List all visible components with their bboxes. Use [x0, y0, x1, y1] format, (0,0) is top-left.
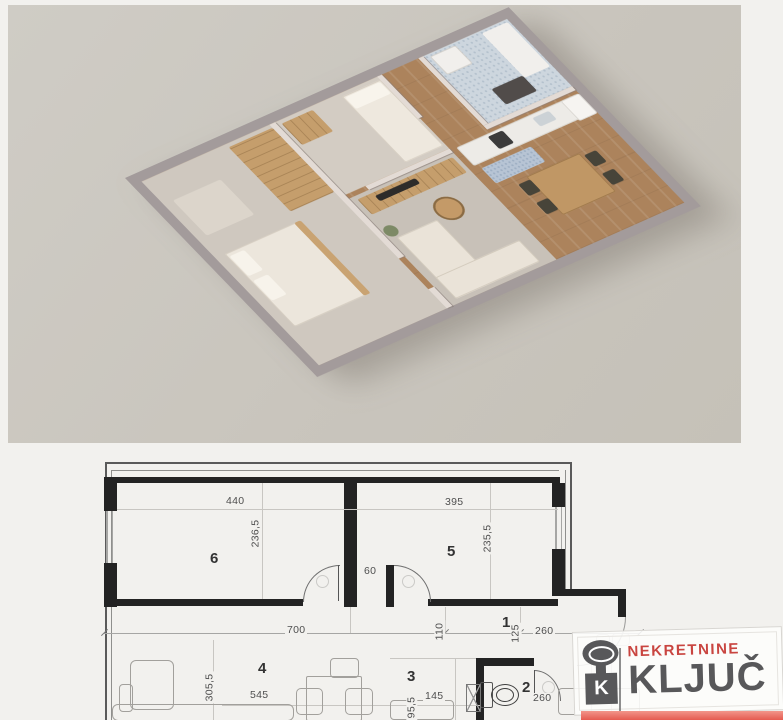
wall	[344, 483, 357, 607]
outer-wall-line	[111, 470, 559, 471]
sofa-outline	[130, 660, 174, 710]
wall	[104, 563, 117, 607]
key-body: K	[585, 673, 618, 705]
shaft-symbol	[466, 684, 481, 712]
wall	[386, 565, 394, 607]
apartment-floor	[142, 19, 685, 365]
dimension-line	[104, 633, 640, 634]
dim-room5-width: 395	[443, 497, 465, 508]
room-label-4: 4	[258, 660, 266, 677]
listing-image: 6 5 4 3 1 2 440 236,5 395 235,5 60 700 1…	[0, 0, 783, 720]
kitchen-outline	[390, 700, 454, 720]
agency-logo: K NEKRETNINE KLJUČ	[572, 626, 783, 716]
construction-line	[117, 509, 558, 510]
dim-hall-depth: 110	[434, 621, 445, 643]
room-label-3: 3	[407, 668, 415, 685]
apartment-3d-render	[125, 7, 701, 377]
construction-line	[390, 658, 476, 659]
wall	[104, 477, 117, 511]
dim-hall-a: 125	[511, 622, 522, 644]
dim-room5-height: 235,5	[482, 523, 493, 555]
construction-line	[455, 658, 456, 720]
chair-outline	[296, 688, 323, 715]
wall	[428, 599, 558, 606]
sofa-outline	[112, 704, 294, 720]
wall	[552, 483, 565, 507]
toilet-bowl-inner	[496, 688, 514, 702]
wall	[558, 589, 626, 596]
room-label-5: 5	[447, 543, 455, 560]
construction-line	[350, 607, 351, 633]
room-label-6: 6	[210, 550, 218, 567]
key-icon: K	[581, 640, 621, 707]
outer-wall-line	[105, 462, 572, 464]
dim-kitchen-width: 145	[423, 691, 445, 702]
key-head	[582, 640, 619, 667]
dim-wc-width: 260	[531, 693, 553, 704]
cabinet-outline	[330, 658, 359, 678]
dim-hall-b: 260	[533, 626, 555, 637]
dim-room4-width: 700	[285, 625, 307, 636]
wall	[476, 658, 534, 666]
door-symbol	[316, 575, 329, 588]
outer-wall-line	[570, 462, 572, 590]
dim-room6-height: 236,5	[250, 518, 261, 550]
render-photo	[8, 5, 741, 443]
room-label-2: 2	[522, 679, 530, 696]
window	[555, 507, 557, 549]
construction-line	[262, 483, 263, 599]
dim-room6-width: 440	[224, 496, 246, 507]
dim-room4-height: 305,5	[204, 672, 215, 704]
plan-wall-through-logo	[619, 648, 621, 712]
window	[106, 511, 108, 563]
door-symbol	[402, 575, 415, 588]
wall	[618, 589, 626, 617]
logo-red-band	[581, 711, 783, 720]
logo-brand-main: KLJUČ	[628, 657, 767, 701]
dim-niche: 60	[362, 566, 378, 577]
chair-outline	[345, 688, 373, 715]
outer-wall-line	[565, 470, 566, 590]
window	[561, 507, 562, 549]
wall	[345, 477, 560, 483]
logo-text: NEKRETNINE KLJUČ	[627, 641, 767, 701]
wall	[117, 599, 303, 606]
door-leaf	[338, 565, 339, 601]
wall	[117, 477, 345, 483]
dim-room4-inner: 545	[248, 690, 270, 701]
window	[112, 511, 113, 563]
dim-kitchen-height: 95,5	[406, 695, 417, 720]
